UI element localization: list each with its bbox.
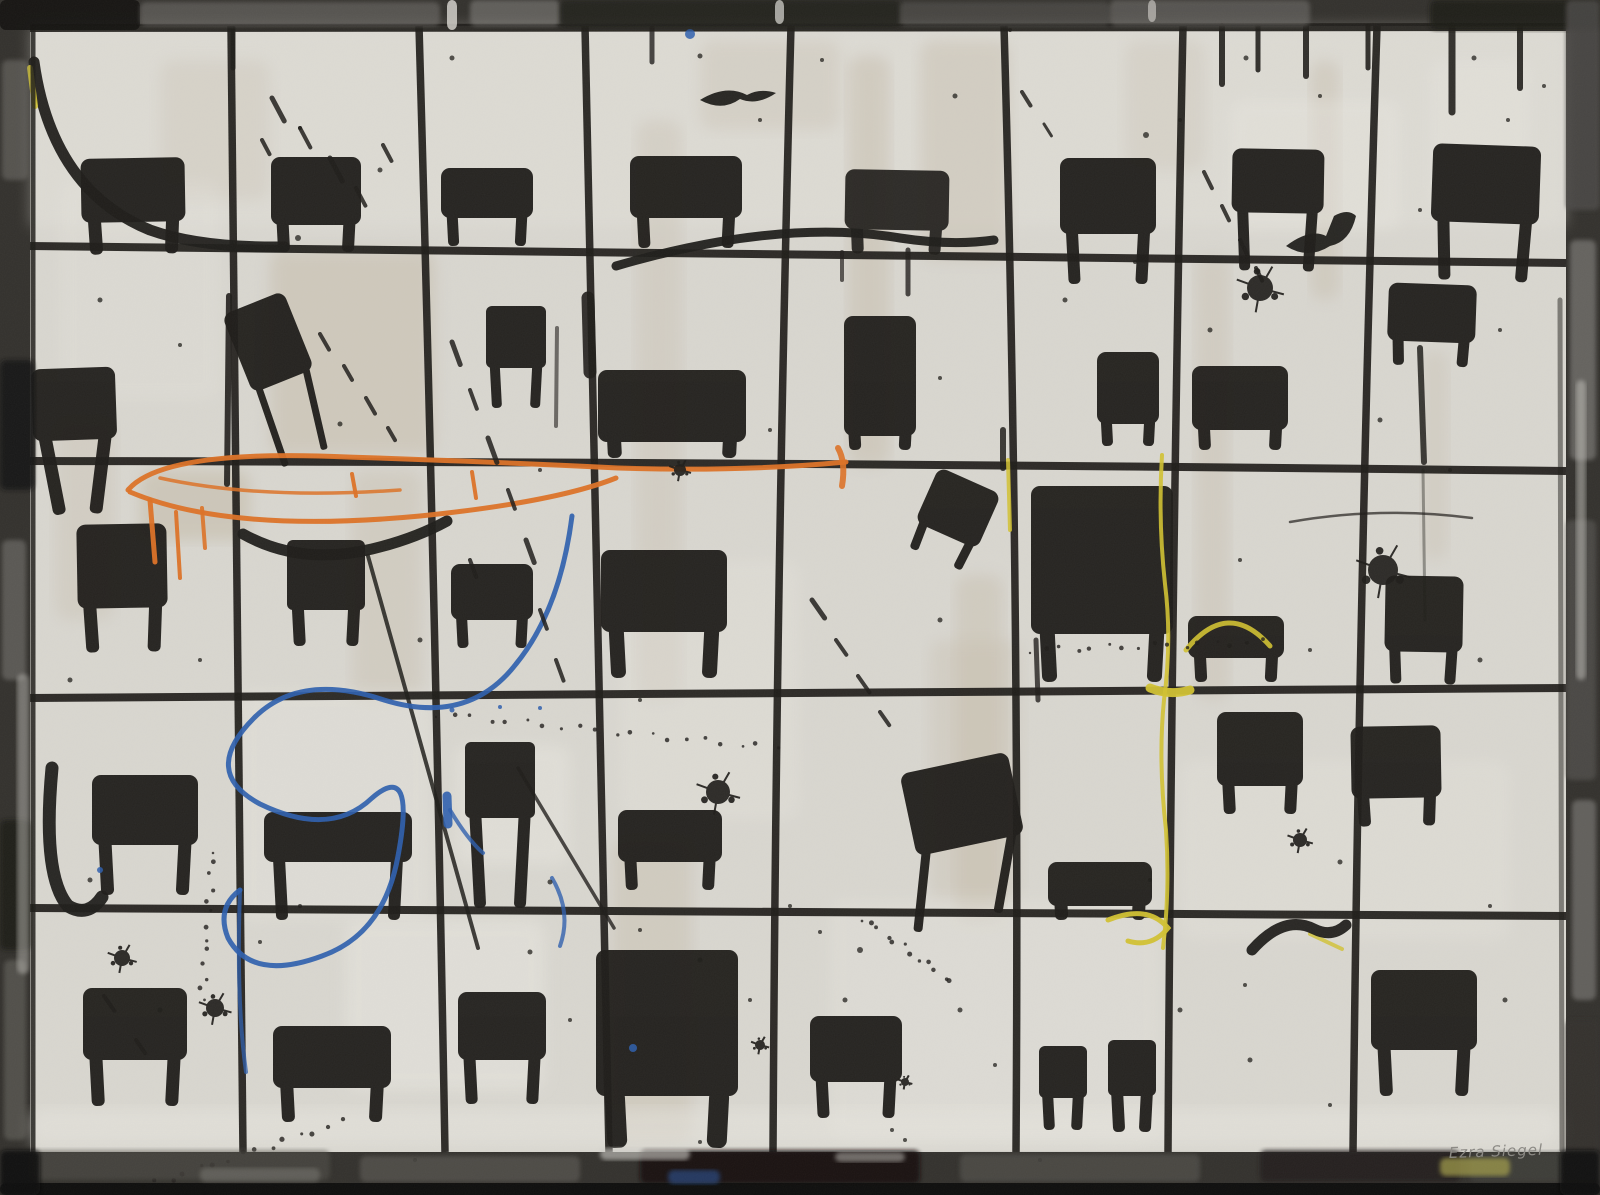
abstract-painting-canvas: Ezra Siegel <box>0 0 1600 1195</box>
painting-photo: Ezra Siegel <box>0 0 1600 1195</box>
grain-texture <box>0 0 1600 1195</box>
texture-overlay <box>0 0 1600 1195</box>
